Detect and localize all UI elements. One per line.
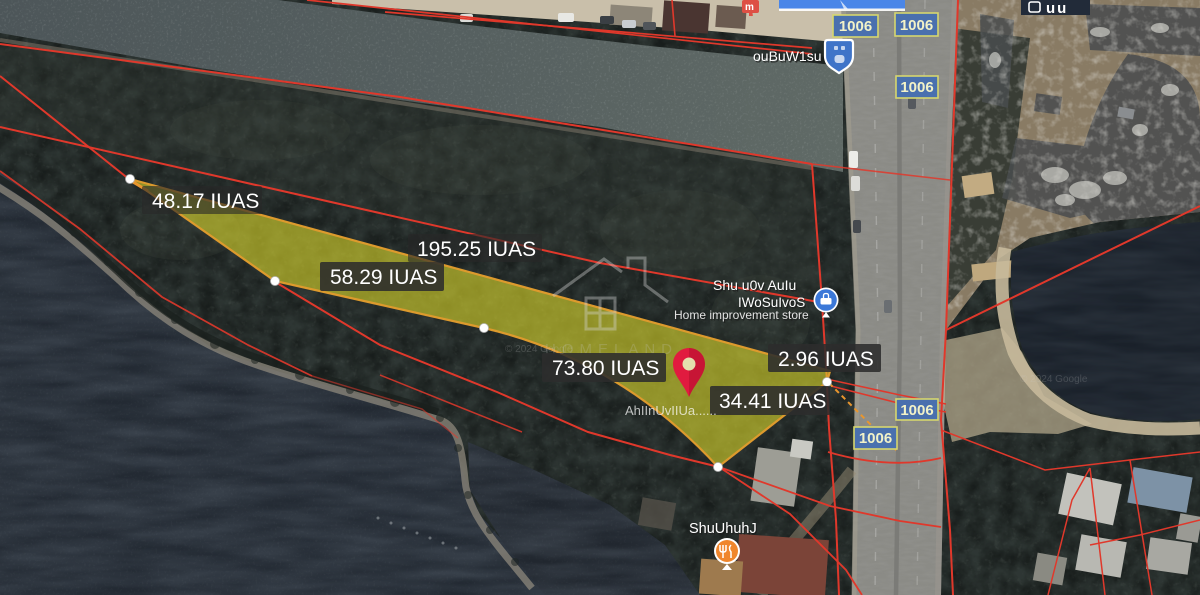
svg-text:1006: 1006 [859, 430, 892, 447]
svg-text:1006: 1006 [900, 79, 933, 96]
svg-text:Shu u0v AuIu: Shu u0v AuIu [713, 277, 796, 293]
svg-text:1006: 1006 [900, 402, 933, 419]
svg-text:© 2024 Google: © 2024 Google [1020, 374, 1088, 385]
svg-text:195.25 IUAS: 195.25 IUAS [417, 238, 536, 261]
svg-text:m: m [745, 2, 754, 13]
svg-text:73.80 IUAS: 73.80 IUAS [552, 357, 659, 380]
svg-text:ShuUhuhJ: ShuUhuhJ [689, 521, 757, 537]
svg-text:58.29 IUAS: 58.29 IUAS [330, 266, 437, 289]
svg-text:Home improvement store: Home improvement store [674, 308, 809, 322]
svg-text:34.41 IUAS: 34.41 IUAS [719, 390, 826, 413]
svg-text:2.96 IUAS: 2.96 IUAS [778, 348, 874, 371]
svg-text:ouBuW1su: ouBuW1su [753, 48, 821, 64]
svg-text:uu: uu [1046, 0, 1068, 17]
svg-text:1006: 1006 [900, 17, 933, 34]
svg-text:1006: 1006 [839, 18, 872, 35]
svg-text:AhIInUvIIUa......: AhIInUvIIUa...... [625, 403, 717, 418]
svg-text:48.17 IUAS: 48.17 IUAS [152, 190, 259, 213]
svg-text:© 2024 Google: © 2024 Google [505, 344, 573, 355]
